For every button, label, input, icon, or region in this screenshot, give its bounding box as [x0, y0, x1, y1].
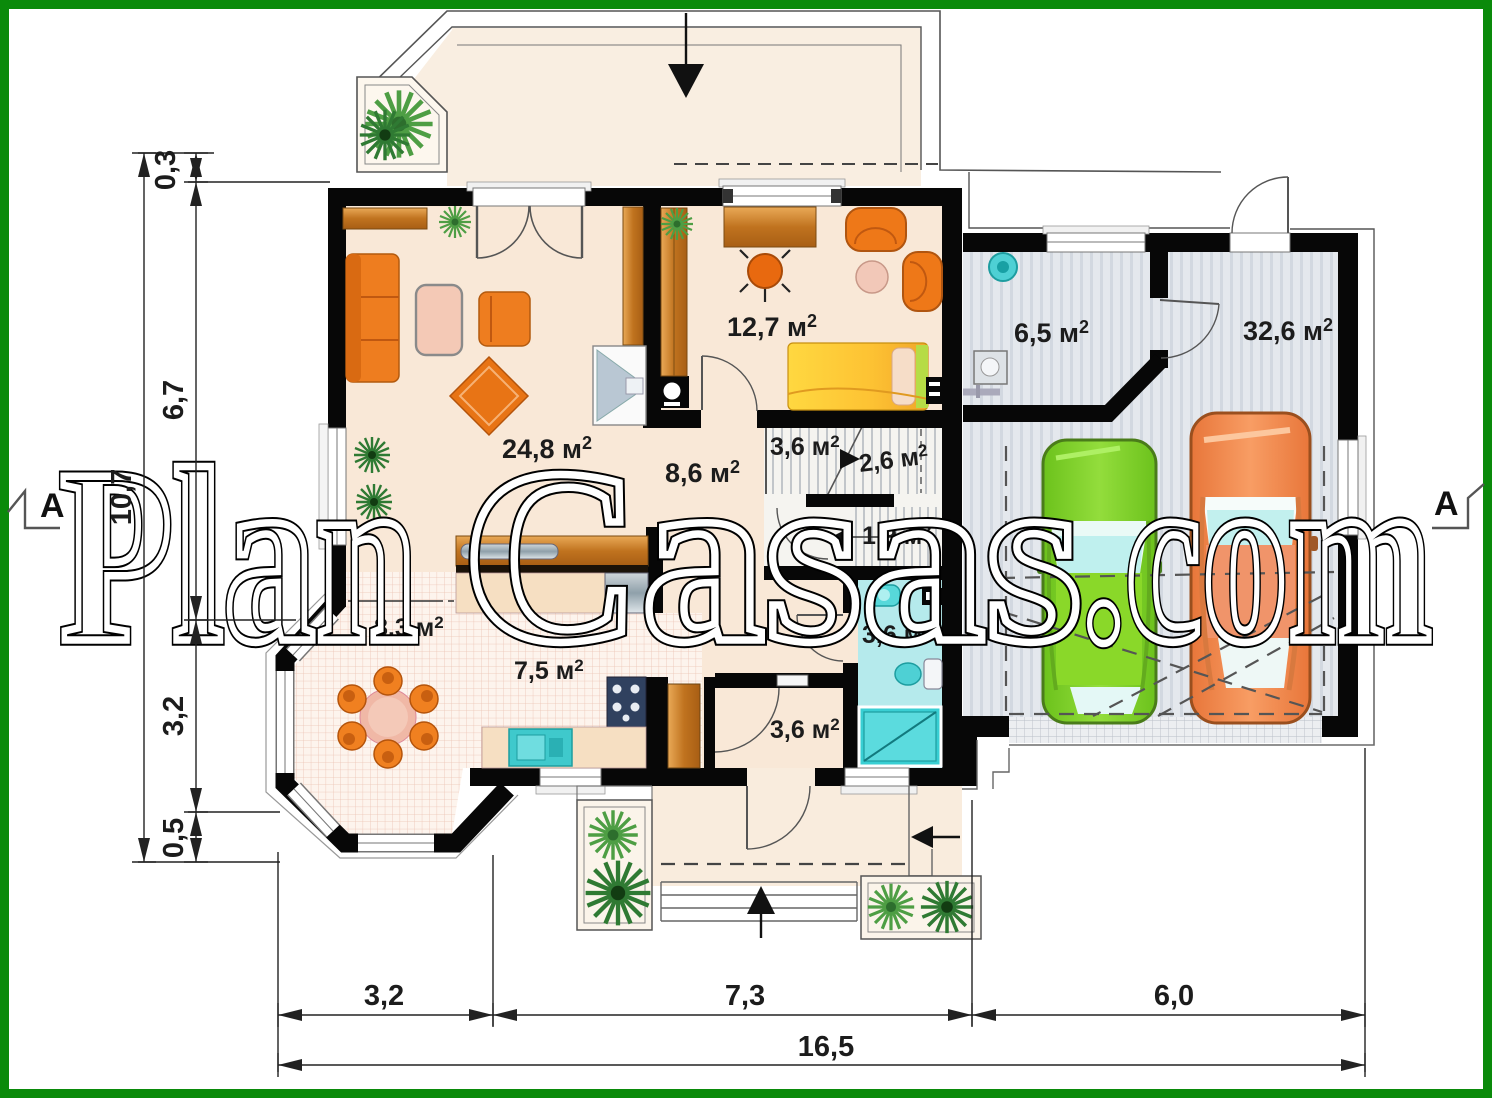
svg-text:Plan: Plan — [60, 418, 418, 695]
svg-text:3,2: 3,2 — [158, 696, 190, 736]
svg-text:A: A — [1434, 485, 1459, 523]
svg-text:10,7: 10,7 — [106, 469, 138, 525]
svg-text:.com: .com — [1082, 418, 1432, 695]
svg-text:Casas: Casas — [462, 418, 1082, 695]
svg-text:6,5 м2: 6,5 м2 — [1014, 317, 1089, 348]
svg-text:A: A — [40, 487, 65, 525]
svg-text:0,5: 0,5 — [158, 818, 190, 858]
svg-text:3,2: 3,2 — [364, 980, 404, 1012]
svg-text:12,7 м2: 12,7 м2 — [727, 311, 817, 342]
svg-text:0,3: 0,3 — [150, 150, 182, 190]
svg-text:32,6 м2: 32,6 м2 — [1243, 315, 1333, 346]
svg-text:16,5: 16,5 — [798, 1031, 854, 1063]
svg-text:3,6 м2: 3,6 м2 — [770, 715, 840, 744]
svg-text:7,3: 7,3 — [725, 980, 765, 1012]
svg-text:6,0: 6,0 — [1154, 980, 1194, 1012]
svg-text:6,7: 6,7 — [158, 380, 190, 420]
